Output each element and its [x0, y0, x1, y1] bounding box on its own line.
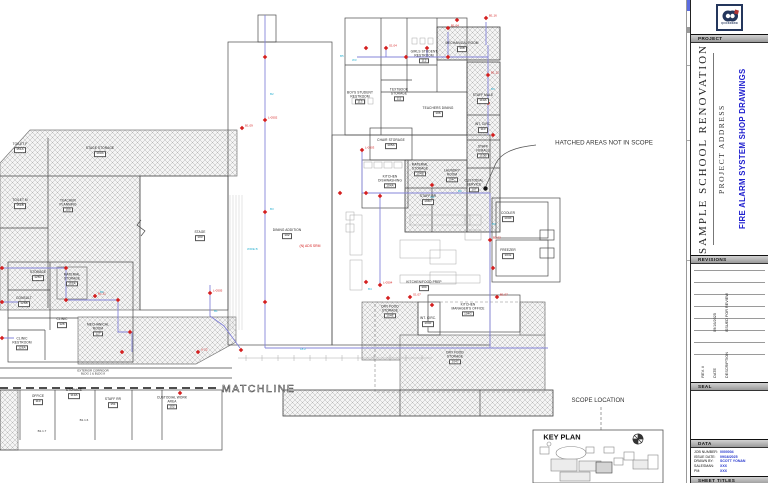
- room-label: TOILET F151A: [9, 143, 31, 153]
- wire-label: W3: [352, 58, 357, 62]
- room-label: DRY FOOD STORAGE104E: [376, 305, 404, 318]
- floor-plan: L-0502B1.09S1.04B1.04B1.16B1.12L-0503L-0…: [0, 0, 690, 483]
- corridor-note: EXTERIOR CORRIDOR BLDG 1 & BLDG 8: [77, 370, 108, 377]
- rev-header-num: REV. #: [701, 366, 705, 378]
- rev-header-date: DATE: [713, 368, 717, 378]
- wire-label: B3: [270, 207, 274, 211]
- project-name: SAMPLE SCHOOL RENOVATION: [697, 43, 709, 255]
- room-label: STAGE STORAGE103A: [85, 147, 115, 157]
- room-label: DRY FOOD STORAGE104J: [440, 351, 470, 364]
- room-label: STAFF FEMALE110B: [471, 145, 495, 158]
- revisions-bar: REVISIONS: [691, 255, 768, 264]
- salesman-value: XXX: [720, 464, 727, 468]
- fire-alarm-device: [455, 18, 460, 23]
- matchline: MATCHLINE: [0, 383, 295, 395]
- fire-alarm-device: B1.09: [240, 124, 253, 131]
- room-label: CLINIC RESTROOM126A: [9, 337, 35, 350]
- drawn-by-value: SCOTT YONAN: [720, 459, 745, 463]
- fire-alarm-device: L-0503: [360, 146, 375, 153]
- rev-header-desc: DESCRIPTION: [725, 352, 729, 378]
- revisions-panel: REV. # DATE DESCRIPTION 09/16/2025 ISSUE…: [691, 264, 768, 382]
- room-label: GIRLS STUDENT RESTROOM112: [409, 50, 439, 63]
- room-label: OFFICE110: [27, 395, 49, 405]
- svg-text:B1.04: B1.04: [451, 24, 459, 28]
- svg-text:L-0502: L-0502: [268, 116, 278, 120]
- svg-text:B1.09: B1.09: [245, 124, 253, 128]
- fire-alarm-device: [404, 55, 409, 60]
- room-label: STAGE103: [188, 231, 212, 241]
- wire-label: WIRE B: [247, 247, 258, 251]
- fire-alarm-device: [386, 296, 391, 301]
- drawing-sheet: L-0502B1.09S1.04B1.04B1.16B1.12L-0503L-0…: [0, 0, 768, 483]
- room-label: KITCHEN DISHWASHING104A: [373, 175, 407, 188]
- sheet-titles-bar: SHEET TITLES: [691, 476, 768, 483]
- svg-text:B1.12: B1.12: [491, 71, 499, 75]
- wire-label: B3: [491, 87, 495, 91]
- svg-text:B2.02: B2.02: [493, 236, 501, 240]
- project-address: PROJECT ADDRESS: [717, 43, 726, 255]
- pm-value: XXX: [720, 469, 727, 473]
- logo-area: QUICKDRAW: [691, 0, 768, 34]
- data-bar: DATA: [691, 439, 768, 448]
- ref-b117: B1.1.7: [38, 429, 47, 433]
- fire-alarm-device: [263, 210, 268, 215]
- room-label: KITCHEN MANAGER'S OFFICE104G: [451, 303, 485, 316]
- room-label: INT. CIRC.110: [471, 123, 495, 133]
- hatched-note: HATCHED AREAS NOT IN SCOPE: [555, 140, 653, 147]
- north-arrow-icon: [633, 434, 643, 444]
- svg-text:L-0505: L-0505: [213, 289, 223, 293]
- room-label: INT. CIRC.104F: [417, 317, 439, 327]
- wire-label: B2: [270, 92, 274, 96]
- rev-entry-date: 09/16/2025: [713, 313, 717, 332]
- fire-alarm-device: [364, 191, 369, 196]
- fire-alarm-device: [263, 300, 268, 305]
- fire-alarm-device: [364, 280, 369, 285]
- room-label: MATERIAL STORAGE104B: [407, 163, 433, 176]
- room-label: MATERIAL STORAGE155A: [59, 273, 85, 286]
- company-logo: QUICKDRAW: [716, 4, 743, 31]
- wire-label: 18.2: [300, 347, 306, 351]
- room-label: CUSTODIAL WORK AREA152: [156, 396, 188, 409]
- room-label: CUSTODIAL SERVICE107: [461, 179, 487, 192]
- data-panel: JOB NUMBER:0000004 ISSUE DATE:09/16/2025…: [691, 448, 768, 476]
- svg-text:U-22: U-22: [201, 348, 208, 352]
- room-label: FREEZER104L: [495, 249, 521, 259]
- svg-text:L-0504: L-0504: [383, 281, 393, 285]
- fire-alarm-device: [263, 55, 268, 60]
- divider: [713, 53, 714, 245]
- rev-entry-desc: ISSUED FOR REVIEW: [725, 293, 729, 332]
- fire-alarm-device: [239, 348, 244, 353]
- room-label: CONSULT126B: [12, 297, 36, 307]
- fire-alarm-device: [430, 303, 435, 308]
- room-label: STAFF MALE110A: [471, 94, 495, 104]
- wire-label: B1: [214, 309, 218, 313]
- room-label: TOILET M151B: [9, 199, 31, 209]
- fire-alarm-device: [0, 336, 4, 341]
- svg-text:L-0503: L-0503: [365, 146, 375, 150]
- svg-text:B1.16: B1.16: [489, 14, 497, 18]
- room-label: CLINIC126: [51, 318, 73, 328]
- seal-bar: SEAL: [691, 382, 768, 391]
- drawing-title: FIRE ALARM SYSTEM SHOP DRAWINGS: [738, 43, 747, 255]
- srm-note: (N) ADS SRM: [300, 244, 321, 248]
- svg-text:S1.07: S1.07: [413, 293, 421, 297]
- logo-text: QUICKDRAW: [721, 23, 738, 25]
- job-number-value: 0000004: [720, 450, 734, 454]
- room-label: KITCHEN/FOOD PREP104: [402, 281, 446, 291]
- pm-label: PM:: [694, 469, 720, 474]
- fire-alarm-device: [364, 46, 369, 51]
- room-label: TEXTBOOK STORAGE111: [384, 88, 414, 101]
- issue-date-value: 09/16/2025: [720, 455, 738, 459]
- room-label: TEACHERS DINING106: [422, 107, 454, 117]
- room-label: MECHANICAL ROOM127: [83, 323, 113, 336]
- svg-text:B1.07: B1.07: [500, 293, 508, 297]
- room-label: STAFF RR104D: [417, 195, 439, 205]
- fire-alarm-device: [338, 191, 343, 196]
- room-label: COOLER104K: [495, 212, 521, 222]
- svg-text:S1.04: S1.04: [389, 44, 397, 48]
- scope-location-label: SCOPE LOCATION: [572, 398, 625, 404]
- fire-alarm-device: B1.07: [495, 293, 508, 300]
- fire-alarm-device: B1.16: [484, 14, 497, 21]
- ref-b116: B1.1.6: [80, 418, 89, 422]
- logo-icon: [720, 9, 740, 23]
- room-label: CHAIR STORAGE105A: [377, 139, 405, 149]
- room-label: BOYS STUDENT RESTROOM113: [345, 91, 375, 104]
- wire-label: B3: [492, 222, 496, 226]
- stage-curtain: [230, 195, 242, 330]
- room-label: DINING ADDITION102: [272, 229, 302, 239]
- fire-alarm-device: S1.07: [408, 293, 421, 300]
- room-label: MECHANICAL ROOM108: [445, 42, 479, 52]
- wire-label: B4: [368, 287, 372, 291]
- matchline-label: MATCHLINE: [222, 383, 295, 395]
- fire-alarm-device: [491, 266, 496, 271]
- project-bar: PROJECT: [691, 34, 768, 43]
- fire-alarm-device: [378, 194, 383, 199]
- room-label: STORAGE126C: [26, 271, 50, 281]
- wire-label: B5: [340, 54, 344, 58]
- room-label: STAFF RR151: [102, 398, 124, 408]
- fire-alarm-device: S1.04: [384, 44, 397, 51]
- seal-panel: [691, 391, 768, 439]
- wire-label: B6: [100, 290, 104, 294]
- key-plan-title: KEY PLAN: [543, 433, 580, 442]
- room-label: STORAGE113A: [62, 389, 86, 399]
- title-block: QUICKDRAW PROJECT SAMPLE SCHOOL RENOVATI…: [690, 0, 768, 483]
- project-panel: SAMPLE SCHOOL RENOVATION PROJECT ADDRESS…: [691, 43, 768, 255]
- room-label: TEACHER PLANNING150: [53, 199, 83, 212]
